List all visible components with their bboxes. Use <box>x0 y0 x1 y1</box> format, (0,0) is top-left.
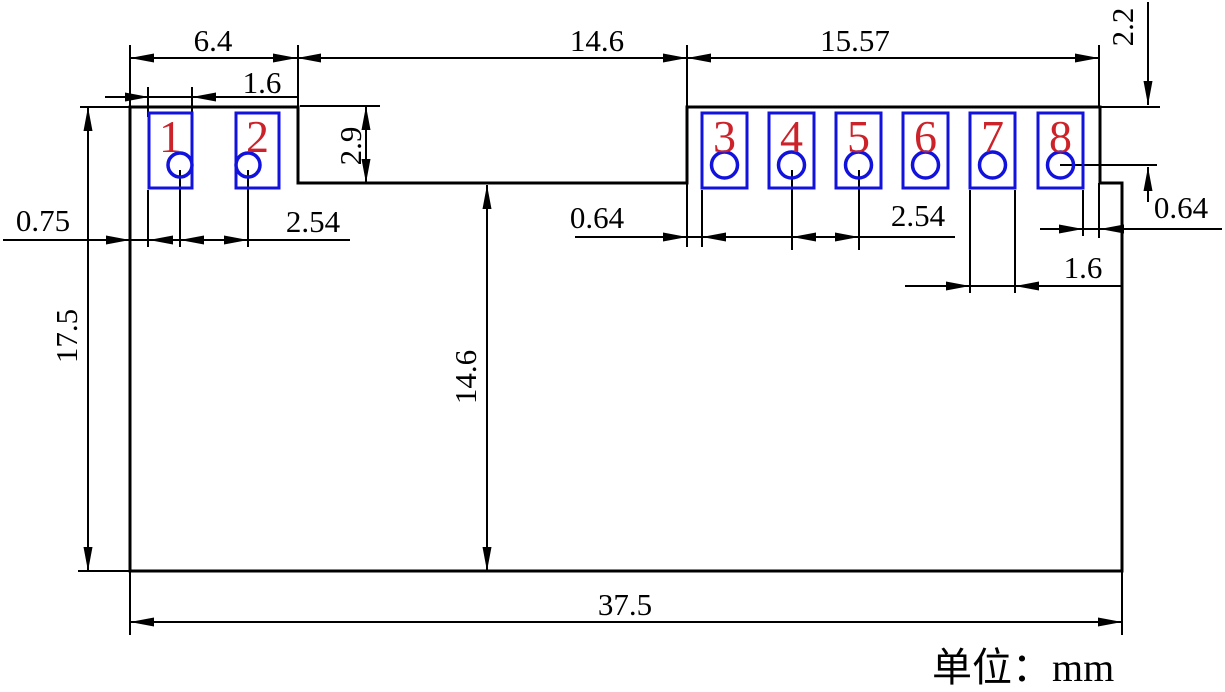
pad-number: 2 <box>246 111 269 162</box>
pad-number: 1 <box>159 111 182 162</box>
pad-number: 7 <box>981 111 1004 162</box>
pad-8: 8 <box>1038 111 1083 188</box>
pad-number: 6 <box>914 111 937 162</box>
pad-5: 5 <box>836 111 881 188</box>
dimension-labels: 6.4 14.6 15.57 1.6 2.9 2.2 0.75 2.54 0.6… <box>16 8 1209 622</box>
drawing-canvas: 1 2 3 4 5 6 7 <box>0 0 1225 692</box>
dim-notch-bottom-height: 14.6 <box>448 350 483 404</box>
dim-width-left-section: 6.4 <box>194 23 233 58</box>
dim-edge-to-pad1: 0.75 <box>16 203 70 238</box>
dim-pad7-width: 1.6 <box>1064 250 1103 285</box>
pcb-footprint-dimension-drawing: 1 2 3 4 5 6 7 <box>0 0 1225 692</box>
dim-pads45-pitch: 2.54 <box>891 198 946 233</box>
pad-number: 5 <box>847 111 870 162</box>
pad-7: 7 <box>970 111 1015 188</box>
dim-pad1-width: 1.6 <box>243 65 282 100</box>
pad-4: 4 <box>769 111 814 188</box>
pad-3: 3 <box>702 111 747 188</box>
pads: 1 2 3 4 5 6 7 <box>149 111 1083 188</box>
dim-gap-notch-to-pad3: 0.64 <box>570 200 625 235</box>
dim-notch-depth: 2.9 <box>333 127 368 166</box>
pad-number: 4 <box>780 111 803 162</box>
pad-2: 2 <box>236 111 279 188</box>
pad-number: 8 <box>1049 111 1072 162</box>
unit-label: 单位：mm <box>932 645 1114 690</box>
dim-width-right-section: 15.57 <box>820 23 890 58</box>
pad-1: 1 <box>149 111 192 188</box>
dim-hole8-to-step: 0.64 <box>1154 190 1209 225</box>
pad-number: 3 <box>713 111 736 162</box>
dim-overall-height: 17.5 <box>49 309 84 363</box>
dim-width-middle-notch: 14.6 <box>570 23 624 58</box>
dim-overall-width: 37.5 <box>598 587 652 622</box>
dimension-lines <box>3 2 1222 622</box>
dim-pads12-pitch: 2.54 <box>286 204 341 239</box>
pad-6: 6 <box>903 111 948 188</box>
dim-top-right-offset: 2.2 <box>1105 8 1140 47</box>
